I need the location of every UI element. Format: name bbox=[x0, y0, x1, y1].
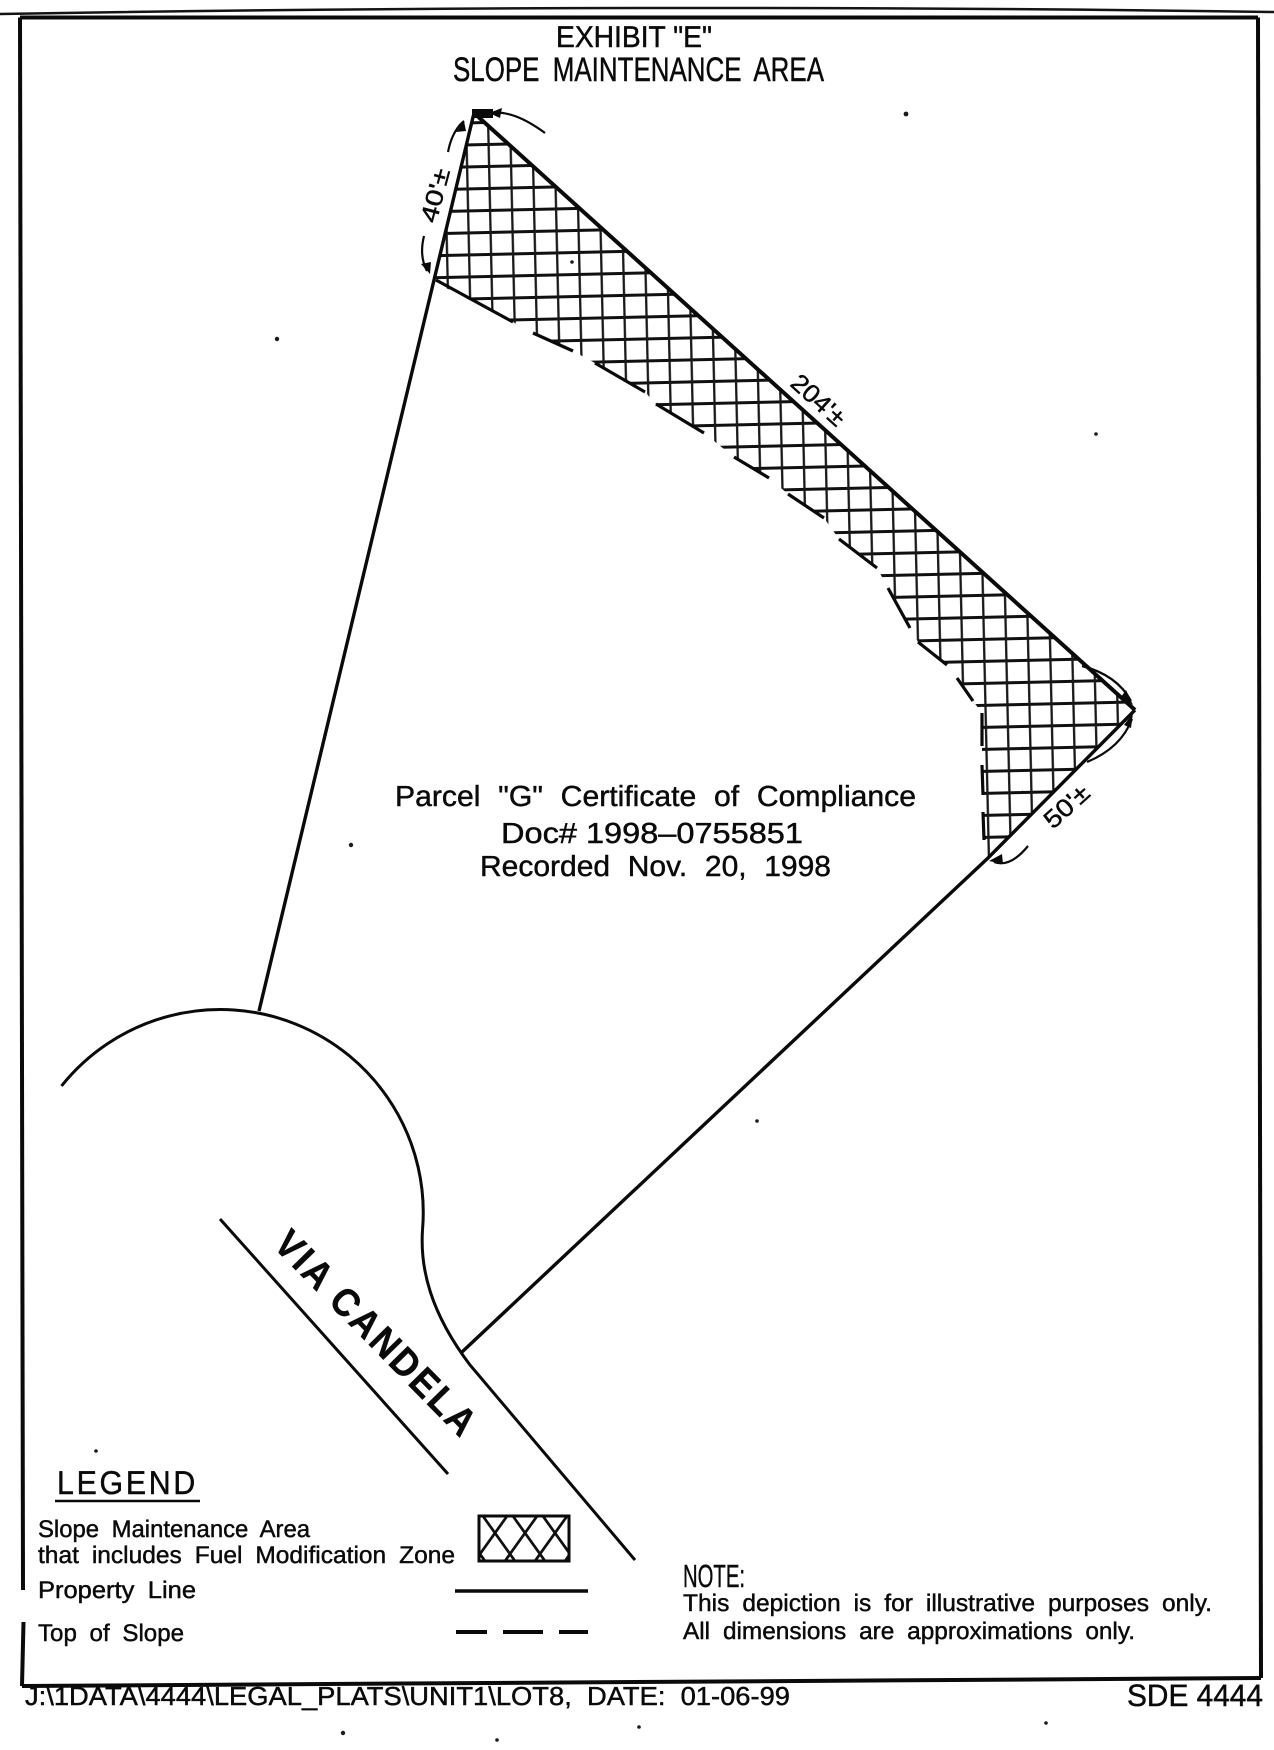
svg-text:Property Line: Property Line bbox=[38, 1577, 196, 1604]
svg-text:This depiction is for illustra: This depiction is for illustrative purpo… bbox=[683, 1590, 1212, 1617]
svg-text:Parcel "G" Certificate of Comp: Parcel "G" Certificate of Compliance bbox=[395, 781, 916, 813]
svg-text:NOTE:: NOTE: bbox=[683, 1558, 745, 1594]
svg-text:that includes Fuel Modificatio: that includes Fuel Modification Zone bbox=[38, 1542, 455, 1569]
svg-text:Recorded Nov. 20, 1998: Recorded Nov. 20, 1998 bbox=[480, 851, 831, 883]
svg-text:Doc# 1998–0755851: Doc# 1998–0755851 bbox=[501, 818, 803, 850]
svg-text:Top of Slope: Top of Slope bbox=[38, 1620, 184, 1647]
svg-text:Slope Maintenance Area: Slope Maintenance Area bbox=[38, 1516, 311, 1543]
svg-text:LEGEND: LEGEND bbox=[57, 1464, 198, 1501]
svg-text:J:\1DATA\4444\LEGAL_PLATS\UNIT: J:\1DATA\4444\LEGAL_PLATS\UNIT1\LOT8, DA… bbox=[25, 1681, 790, 1711]
svg-text:SDE 4444: SDE 4444 bbox=[1127, 1678, 1263, 1713]
svg-text:EXHIBIT "E": EXHIBIT "E" bbox=[556, 21, 712, 54]
svg-text:SLOPE MAINTENANCE AREA: SLOPE MAINTENANCE AREA bbox=[453, 51, 824, 89]
svg-text:All dimensions are approximati: All dimensions are approximations only. bbox=[683, 1618, 1135, 1645]
